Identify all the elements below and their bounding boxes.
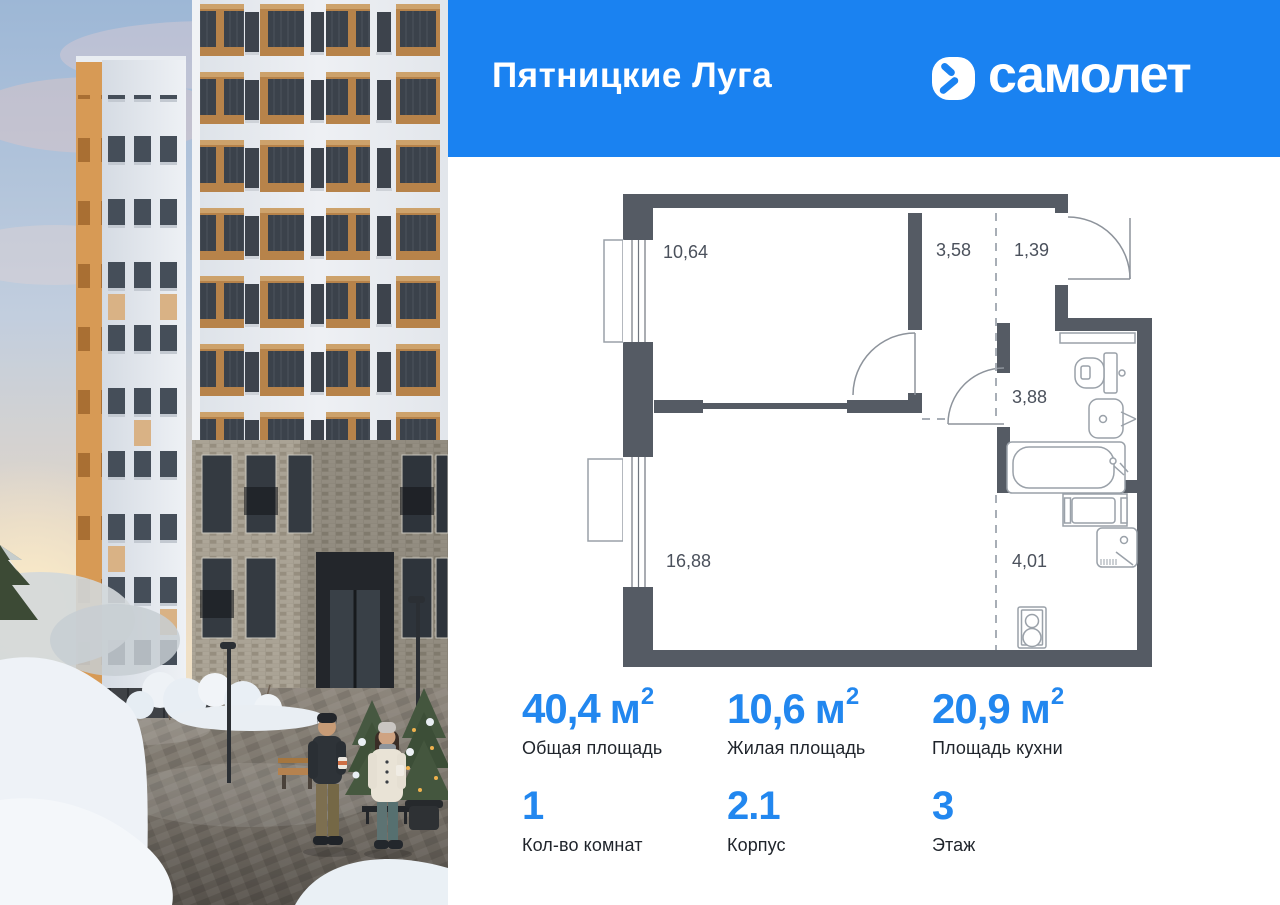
- balcony-outline: [588, 459, 623, 541]
- snow-patch-center: [175, 705, 325, 731]
- room-area-label: 1,39: [1014, 240, 1049, 260]
- room-area-label: 3,58: [936, 240, 971, 260]
- brand-wordmark: самолет: [988, 45, 1190, 105]
- room-area-label: 4,01: [1012, 551, 1047, 571]
- plan-zone-dividers: [922, 213, 996, 650]
- stat-label: Этаж: [932, 835, 1137, 856]
- plan-walls: [623, 194, 1152, 667]
- winter-courtyard-scene: [0, 0, 448, 905]
- toilet-tank: [1104, 353, 1117, 393]
- kitchen-sink: [1097, 528, 1137, 567]
- stat-label: Жилая площадь: [727, 738, 932, 759]
- stat-total-area: 40,4м2 Общая площадь: [522, 681, 727, 759]
- close-building: [192, 0, 448, 700]
- stat-building-number: 2.1 Корпус: [727, 786, 932, 856]
- room-area-label: 10,64: [663, 242, 708, 262]
- room-area-label: 3,88: [1012, 387, 1047, 407]
- stat-floor-number: 3 Этаж: [932, 786, 1137, 856]
- stat-value: 10,6м2: [727, 681, 932, 729]
- entrance-door: [316, 552, 394, 695]
- stat-kitchen-area: 20,9м2 Площадь кухни: [932, 681, 1137, 759]
- brand-logo: самолет: [932, 0, 1190, 157]
- stat-living-area: 10,6м2 Жилая площадь: [727, 681, 932, 759]
- project-title: Пятницкие Луга: [492, 0, 772, 154]
- shelf: [1060, 333, 1135, 343]
- stat-value: 2.1: [727, 786, 932, 826]
- building-photo: [0, 0, 448, 905]
- stat-value: 3: [932, 786, 1137, 826]
- room-area-label: 16,88: [666, 551, 711, 571]
- plan-fixtures: [1007, 333, 1137, 648]
- stat-value: 20,9м2: [932, 681, 1137, 729]
- floor-plan: 10,64 3,58 1,39 3,88 16,88 4,01: [585, 190, 1157, 672]
- stat-label: Корпус: [727, 835, 932, 856]
- stat-rooms-count: 1 Кол-во комнат: [522, 786, 727, 856]
- samolet-arrow-icon: [932, 57, 975, 100]
- stat-value: 40,4м2: [522, 681, 727, 729]
- stat-label: Площадь кухни: [932, 738, 1137, 759]
- stat-label: Общая площадь: [522, 738, 727, 759]
- stat-value: 1: [522, 786, 727, 826]
- header-bar: Пятницкие Луга самолет: [448, 0, 1280, 157]
- stat-label: Кол-во комнат: [522, 835, 727, 856]
